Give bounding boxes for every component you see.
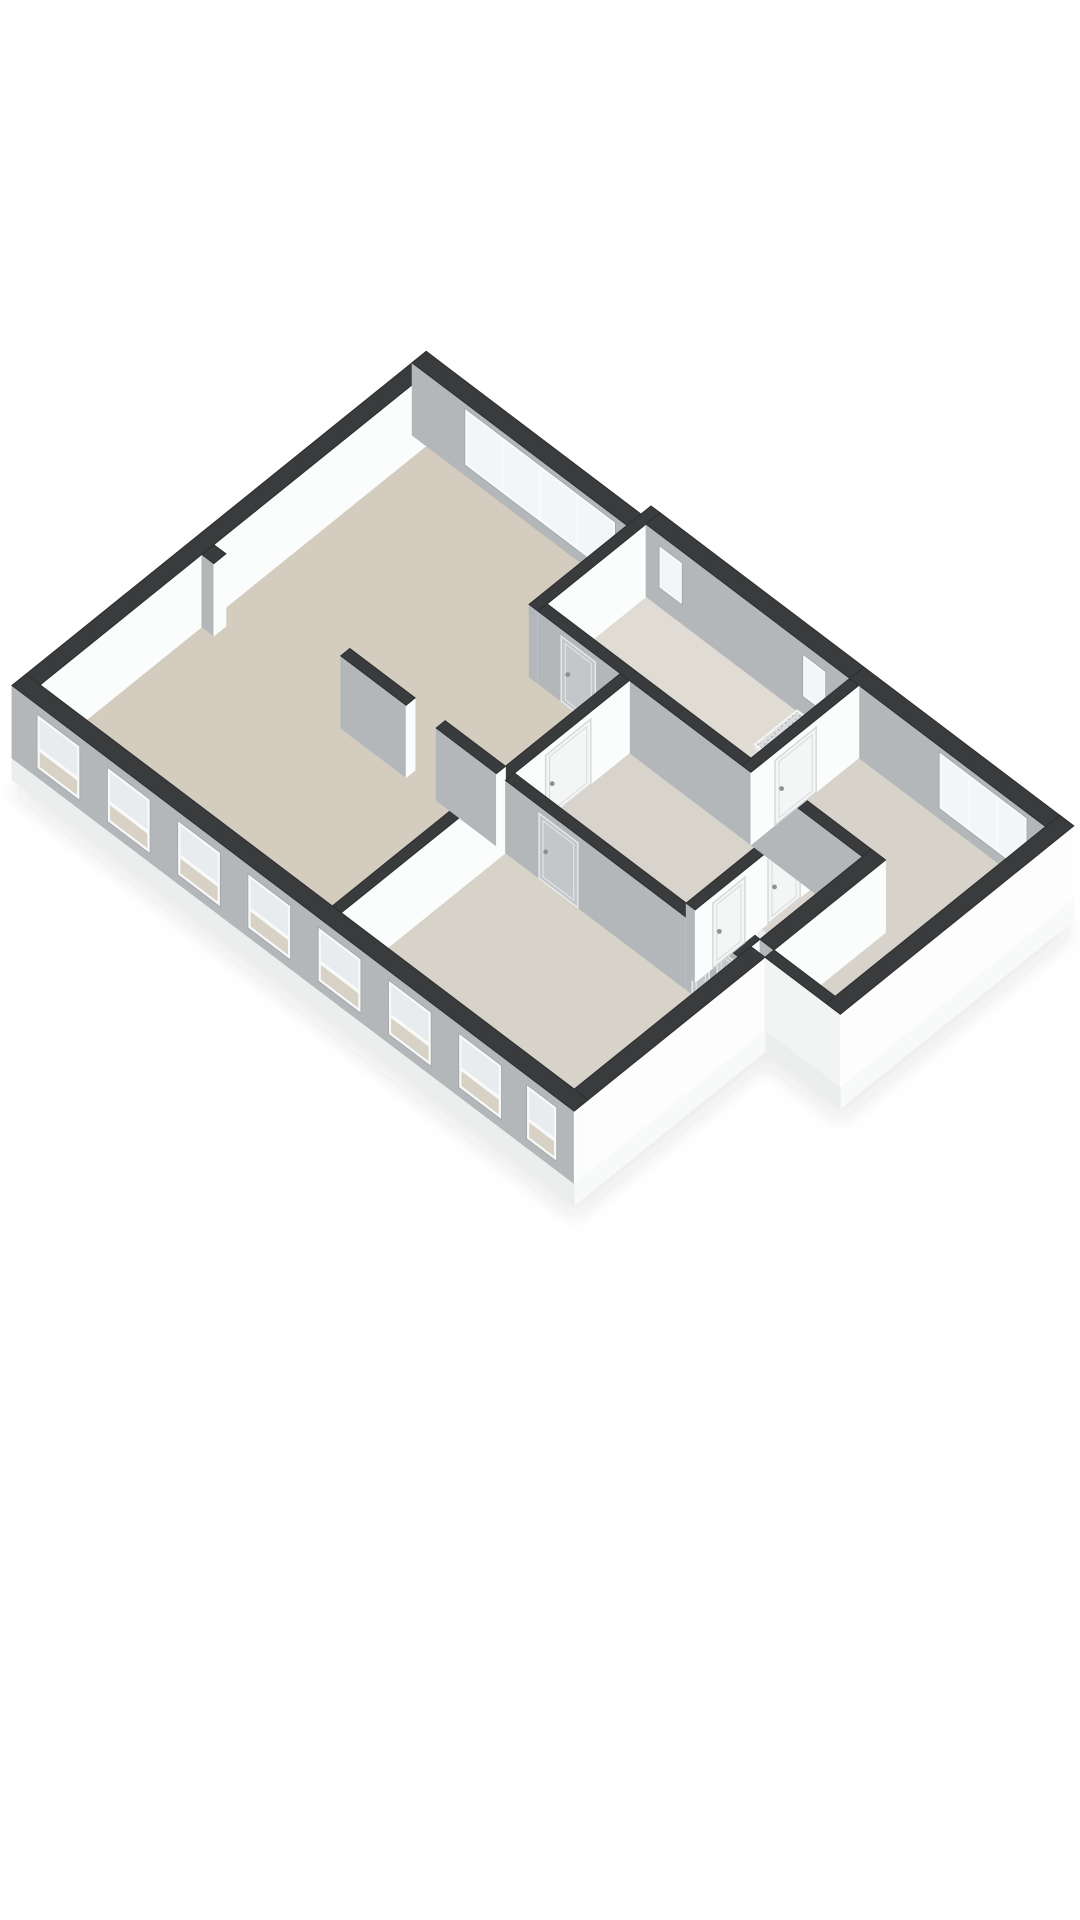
wall-west-duct-pillar-face-s (202, 554, 214, 636)
wall-bathroom-east-door-handle-1 (779, 786, 784, 791)
wall-hall-south-door-handle-1 (543, 849, 548, 854)
wall-closets-west-door-handle-1 (717, 929, 722, 934)
floorplan-3d-view (0, 0, 1080, 1920)
wall-west-duct-pillar-face-e (214, 554, 226, 636)
wall-living-divider-b-face-e (496, 766, 505, 846)
wall-closets-west-door-handle-2 (772, 884, 777, 889)
wall-bathroom-west-face-s (529, 604, 538, 683)
wall-living-divider-a-face-e (406, 698, 415, 778)
floor-plan-page (0, 0, 1080, 1920)
wall-living-east-door-handle-1 (550, 781, 555, 786)
wall-bathroom-east-face-s (742, 766, 751, 845)
wall-facade-south-face-e (574, 1100, 588, 1184)
wall-wing-east-exterior-face-s (826, 1004, 840, 1087)
wall-bathroom-south-door-handle-1 (565, 672, 570, 677)
wall-closets-west-face-s (686, 903, 695, 982)
